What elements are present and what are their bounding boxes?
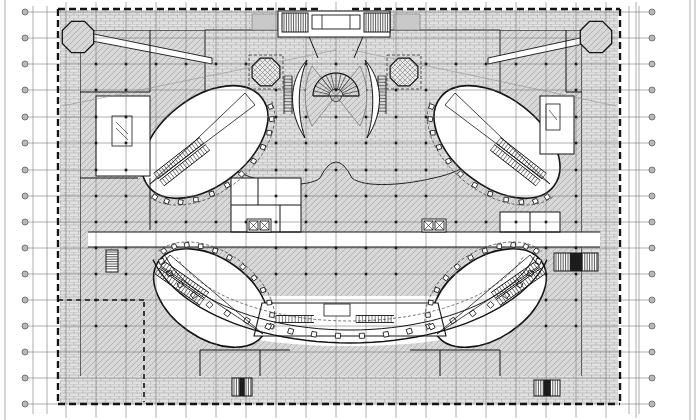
floor-plan-canvas bbox=[0, 0, 700, 420]
elevator-bank bbox=[422, 219, 446, 232]
grid-bubble bbox=[649, 193, 655, 199]
grid-bubble bbox=[649, 9, 655, 15]
grid-bubble bbox=[22, 245, 28, 251]
elevator-bank bbox=[247, 219, 271, 232]
stair bbox=[106, 250, 118, 272]
grid-bubble bbox=[22, 375, 28, 381]
stair bbox=[554, 253, 598, 271]
stair bbox=[364, 13, 390, 32]
grid-bubble bbox=[22, 140, 28, 146]
grid-bubble bbox=[649, 297, 655, 303]
grid-bubble bbox=[649, 114, 655, 120]
grid-bubble bbox=[649, 323, 655, 329]
grid-bubble bbox=[649, 375, 655, 381]
stair bbox=[282, 13, 308, 32]
drawing-sheet bbox=[0, 0, 700, 420]
grid-bubble bbox=[649, 140, 655, 146]
grid-bubble bbox=[649, 271, 655, 277]
grid-bubble bbox=[22, 297, 28, 303]
grid-bubble bbox=[22, 87, 28, 93]
grid-bubble bbox=[649, 245, 655, 251]
grid-bubble bbox=[649, 167, 655, 173]
grid-bubble bbox=[649, 349, 655, 355]
grid-bubble bbox=[22, 9, 28, 15]
grid-bubble bbox=[22, 219, 28, 225]
grid-bubble bbox=[22, 167, 28, 173]
grid-bubble bbox=[649, 35, 655, 41]
grid-bubble bbox=[22, 35, 28, 41]
grid-bubble bbox=[649, 87, 655, 93]
grid-bubble bbox=[22, 61, 28, 67]
grid-bubble bbox=[22, 323, 28, 329]
grid-bubble bbox=[649, 401, 655, 407]
grid-bubble bbox=[22, 401, 28, 407]
grid-bubble bbox=[22, 114, 28, 120]
grid-bubble bbox=[649, 219, 655, 225]
grid-bubble bbox=[22, 271, 28, 277]
stair bbox=[232, 378, 252, 396]
floor-fills bbox=[60, 10, 618, 404]
grid-bubble bbox=[649, 61, 655, 67]
grid-bubble bbox=[22, 349, 28, 355]
stair bbox=[534, 380, 560, 396]
grid-bubble bbox=[22, 193, 28, 199]
